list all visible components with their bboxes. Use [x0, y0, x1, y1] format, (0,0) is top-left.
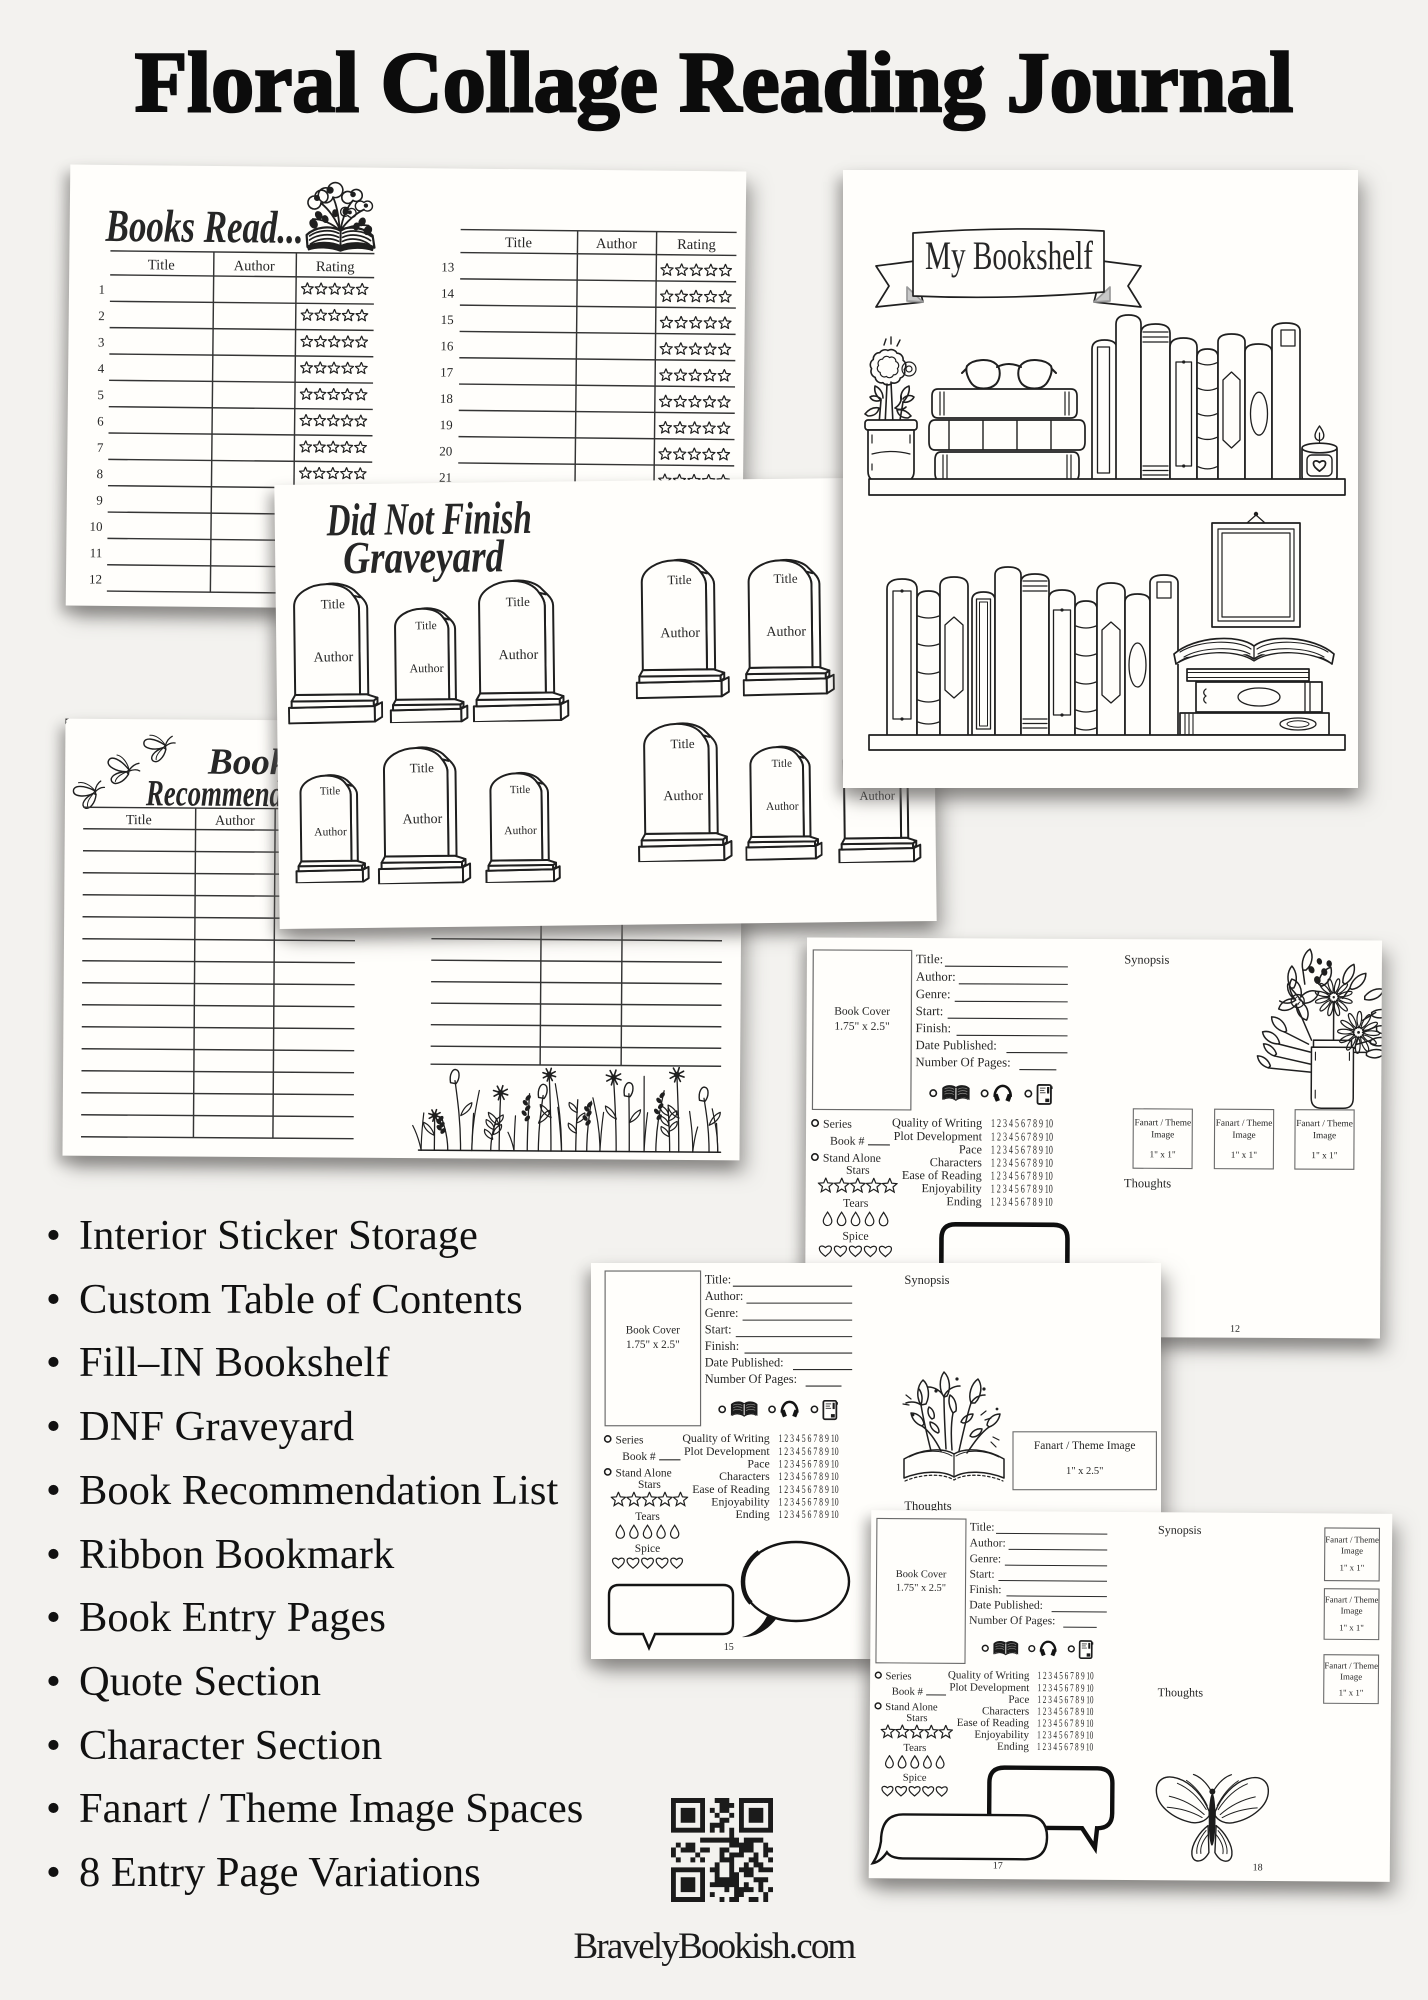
svg-text:10: 10: [89, 519, 102, 534]
svg-text:Image: Image: [1341, 1545, 1363, 1555]
svg-text:8: 8: [97, 466, 104, 481]
svg-text:Title: Title: [510, 784, 531, 796]
svg-text:7: 7: [97, 440, 104, 455]
svg-text:15: 15: [724, 1642, 734, 1653]
svg-text:Synopsis: Synopsis: [904, 1273, 949, 1287]
svg-text:Fanart / Theme: Fanart / Theme: [1325, 1594, 1379, 1604]
svg-text:Author: Author: [766, 625, 806, 640]
svg-text:Title: Title: [670, 736, 695, 751]
svg-text:Fanart / Theme: Fanart / Theme: [1216, 1119, 1273, 1129]
svg-text:Title: Title: [320, 785, 341, 797]
svg-text:1" x 1": 1" x 1": [1231, 1151, 1257, 1161]
svg-text:6: 6: [97, 413, 104, 428]
svg-text:Author: Author: [314, 650, 354, 665]
svg-text:12: 12: [89, 571, 102, 586]
svg-text:1" x 2.5": 1" x 2.5": [1066, 1466, 1103, 1477]
svg-text:17: 17: [993, 1861, 1003, 1872]
svg-text:Title: Title: [771, 758, 792, 770]
svg-text:2: 2: [98, 308, 105, 323]
svg-text:Thoughts: Thoughts: [1158, 1685, 1204, 1699]
svg-text:Title: Title: [667, 572, 692, 587]
svg-text:Author: Author: [859, 788, 895, 802]
svg-text:1" x 1": 1" x 1": [1339, 1622, 1364, 1632]
svg-text:Fanart / Theme: Fanart / Theme: [1296, 1119, 1353, 1129]
svg-text:17: 17: [440, 365, 454, 380]
svg-text:3: 3: [98, 334, 105, 349]
svg-text:4: 4: [98, 361, 105, 376]
svg-text:Author: Author: [409, 661, 443, 675]
svg-text:1" x 1": 1" x 1": [1149, 1150, 1175, 1160]
svg-text:Image: Image: [1151, 1130, 1174, 1140]
svg-text:Title: Title: [773, 571, 798, 586]
svg-text:Image: Image: [1313, 1131, 1336, 1141]
svg-text:Graveyard: Graveyard: [343, 530, 505, 583]
svg-text:Title: Title: [415, 620, 436, 632]
svg-text:Title: Title: [321, 596, 346, 611]
svg-text:1" x 1": 1" x 1": [1339, 1562, 1364, 1572]
svg-text:9: 9: [96, 493, 103, 508]
svg-text:Author: Author: [766, 801, 799, 813]
svg-text:Author: Author: [402, 812, 442, 827]
svg-text:Title: Title: [148, 257, 175, 273]
svg-text:Image: Image: [1341, 1605, 1363, 1615]
svg-text:Rating: Rating: [677, 237, 716, 253]
svg-text:Fanart / Theme: Fanart / Theme: [1324, 1660, 1378, 1670]
svg-text:Thoughts: Thoughts: [1124, 1176, 1171, 1190]
svg-text:11: 11: [90, 545, 103, 560]
svg-text:18: 18: [1253, 1862, 1263, 1873]
svg-text:My Bookshelf: My Bookshelf: [925, 233, 1093, 278]
svg-text:Author: Author: [663, 789, 703, 804]
svg-text:Fanart / Theme: Fanart / Theme: [1134, 1118, 1191, 1128]
svg-text:Fanart / Theme: Fanart / Theme: [1325, 1534, 1379, 1544]
svg-text:Title: Title: [506, 594, 531, 609]
svg-text:Author: Author: [314, 826, 347, 838]
svg-text:Image: Image: [1340, 1671, 1362, 1681]
svg-text:Title: Title: [126, 813, 152, 828]
svg-text:16: 16: [440, 338, 454, 353]
svg-text:1" x 1": 1" x 1": [1311, 1151, 1337, 1161]
svg-text:Rating: Rating: [316, 259, 355, 275]
svg-text:18: 18: [440, 391, 453, 406]
svg-text:19: 19: [440, 417, 453, 432]
svg-text:5: 5: [97, 387, 104, 402]
svg-text:Books Read...: Books Read...: [105, 200, 304, 253]
svg-text:1: 1: [98, 282, 105, 297]
svg-text:14: 14: [441, 286, 455, 301]
svg-text:Author: Author: [504, 825, 537, 837]
svg-text:Title: Title: [505, 235, 532, 251]
svg-text:Title: Title: [410, 760, 435, 775]
svg-text:Image: Image: [1232, 1131, 1255, 1141]
svg-text:12: 12: [1230, 1324, 1240, 1335]
svg-text:Author: Author: [234, 258, 275, 274]
svg-text:1" x 1": 1" x 1": [1339, 1687, 1364, 1697]
svg-text:13: 13: [441, 259, 454, 274]
svg-text:Author: Author: [215, 814, 255, 829]
svg-text:Synopsis: Synopsis: [1158, 1523, 1202, 1537]
svg-text:20: 20: [439, 443, 452, 458]
svg-text:Fanart / Theme Image: Fanart / Theme Image: [1034, 1440, 1136, 1452]
svg-text:Author: Author: [498, 648, 538, 663]
svg-text:Synopsis: Synopsis: [1124, 953, 1169, 967]
svg-text:Author: Author: [596, 236, 637, 252]
svg-text:15: 15: [441, 312, 454, 327]
svg-text:Author: Author: [660, 626, 700, 641]
